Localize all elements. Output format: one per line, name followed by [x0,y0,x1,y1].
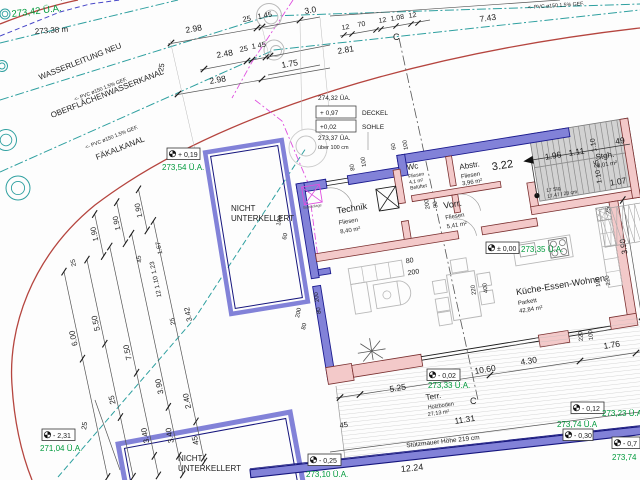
svg-text:- 0,30: - 0,30 [574,433,592,440]
svg-text:25: 25 [242,14,252,24]
svg-text:NICHT: NICHT [178,454,203,463]
svg-text:25: 25 [81,421,89,430]
svg-text:SOHLE: SOHLE [362,124,385,131]
svg-text:+ 0,19: + 0,19 [178,152,198,159]
svg-text:- 0,25: - 0,25 [319,458,337,465]
svg-text:C: C [393,32,400,42]
svg-text:DECKEL: DECKEL [362,110,388,117]
svg-text:273,74 Ü.A: 273,74 Ü.A [557,420,598,429]
svg-text:273,37 ÜA.: 273,37 ÜA. [318,134,351,142]
svg-text:273,10 Ü.A.: 273,10 Ü.A. [306,470,348,479]
svg-text:NICHT: NICHT [231,204,256,213]
svg-text:45: 45 [339,420,349,430]
svg-text:45: 45 [257,40,267,50]
svg-text:- 0,12: - 0,12 [582,406,600,413]
svg-text:49: 49 [614,135,625,146]
svg-text:UNTERKELLERT: UNTERKELLERT [231,214,294,223]
svg-text:+0,02: +0,02 [320,124,337,131]
svg-text:3.0: 3.0 [304,4,318,16]
svg-text:- 0,7: - 0,7 [623,441,637,448]
svg-text:70: 70 [357,21,366,29]
svg-text:25: 25 [593,159,601,168]
svg-text:- 0,02: - 0,02 [438,373,456,380]
svg-text:100: 100 [588,329,595,340]
svg-text:± 0,00: ± 0,00 [497,246,517,253]
svg-text:Wc: Wc [406,161,419,172]
svg-text:273,33 Ü.A.: 273,33 Ü.A. [428,381,470,390]
svg-text:273,23 Ü.A.: 273,23 Ü.A. [602,409,640,418]
svg-text:12: 12 [341,24,350,32]
svg-text:273,54 Ü.A.: 273,54 Ü.A. [162,163,204,172]
svg-text:12: 12 [408,12,417,20]
svg-text:273,35 Ü.A.: 273,35 Ü.A. [521,245,563,254]
svg-text:+ 0,97: + 0,97 [320,110,339,117]
svg-text:- 2,31: - 2,31 [53,433,71,440]
svg-text:12: 12 [378,17,387,25]
svg-text:25: 25 [239,44,249,54]
svg-text:25: 25 [156,63,166,73]
svg-text:80: 80 [405,257,414,265]
svg-text:273,74: 273,74 [612,453,637,462]
svg-text:UNTERKELLERT: UNTERKELLERT [178,464,241,473]
svg-text:274,32 ÜA.: 274,32 ÜA. [318,94,351,102]
svg-text:220: 220 [578,330,585,341]
svg-text:271,04 Ü.A.: 271,04 Ü.A. [40,444,82,453]
svg-text:über 100 cm: über 100 cm [318,145,349,151]
